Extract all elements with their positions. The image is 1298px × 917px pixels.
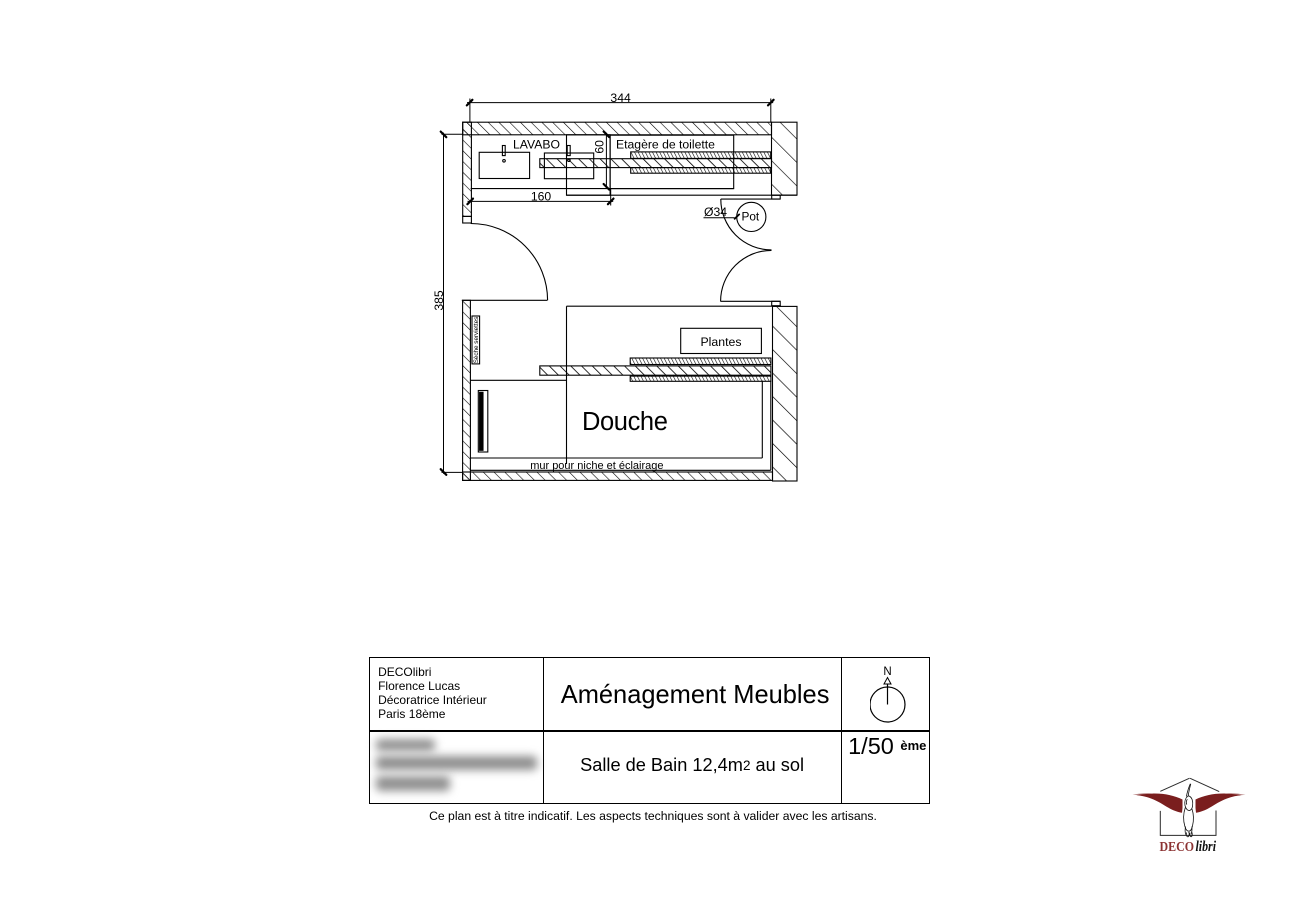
svg-text:Plantes: Plantes: [700, 335, 741, 349]
svg-text:344: 344: [610, 91, 631, 105]
svg-text:DECO: DECO: [1160, 840, 1195, 855]
svg-text:LAVABO: LAVABO: [513, 138, 560, 152]
svg-text:Douche: Douche: [582, 408, 668, 436]
svg-text:Sèche serviettes: Sèche serviettes: [473, 317, 480, 364]
svg-text:N: N: [883, 666, 891, 678]
svg-text:Pot: Pot: [742, 210, 760, 224]
svg-text:160: 160: [531, 190, 552, 204]
svg-text:60: 60: [593, 140, 607, 154]
svg-text:libri: libri: [1196, 839, 1217, 855]
svg-text:Etagère de toilette: Etagère de toilette: [616, 138, 715, 152]
svg-text:Ø34: Ø34: [704, 205, 727, 219]
svg-text:mur pour niche et éclairage: mur pour niche et éclairage: [530, 460, 663, 472]
svg-text:385: 385: [432, 290, 446, 311]
